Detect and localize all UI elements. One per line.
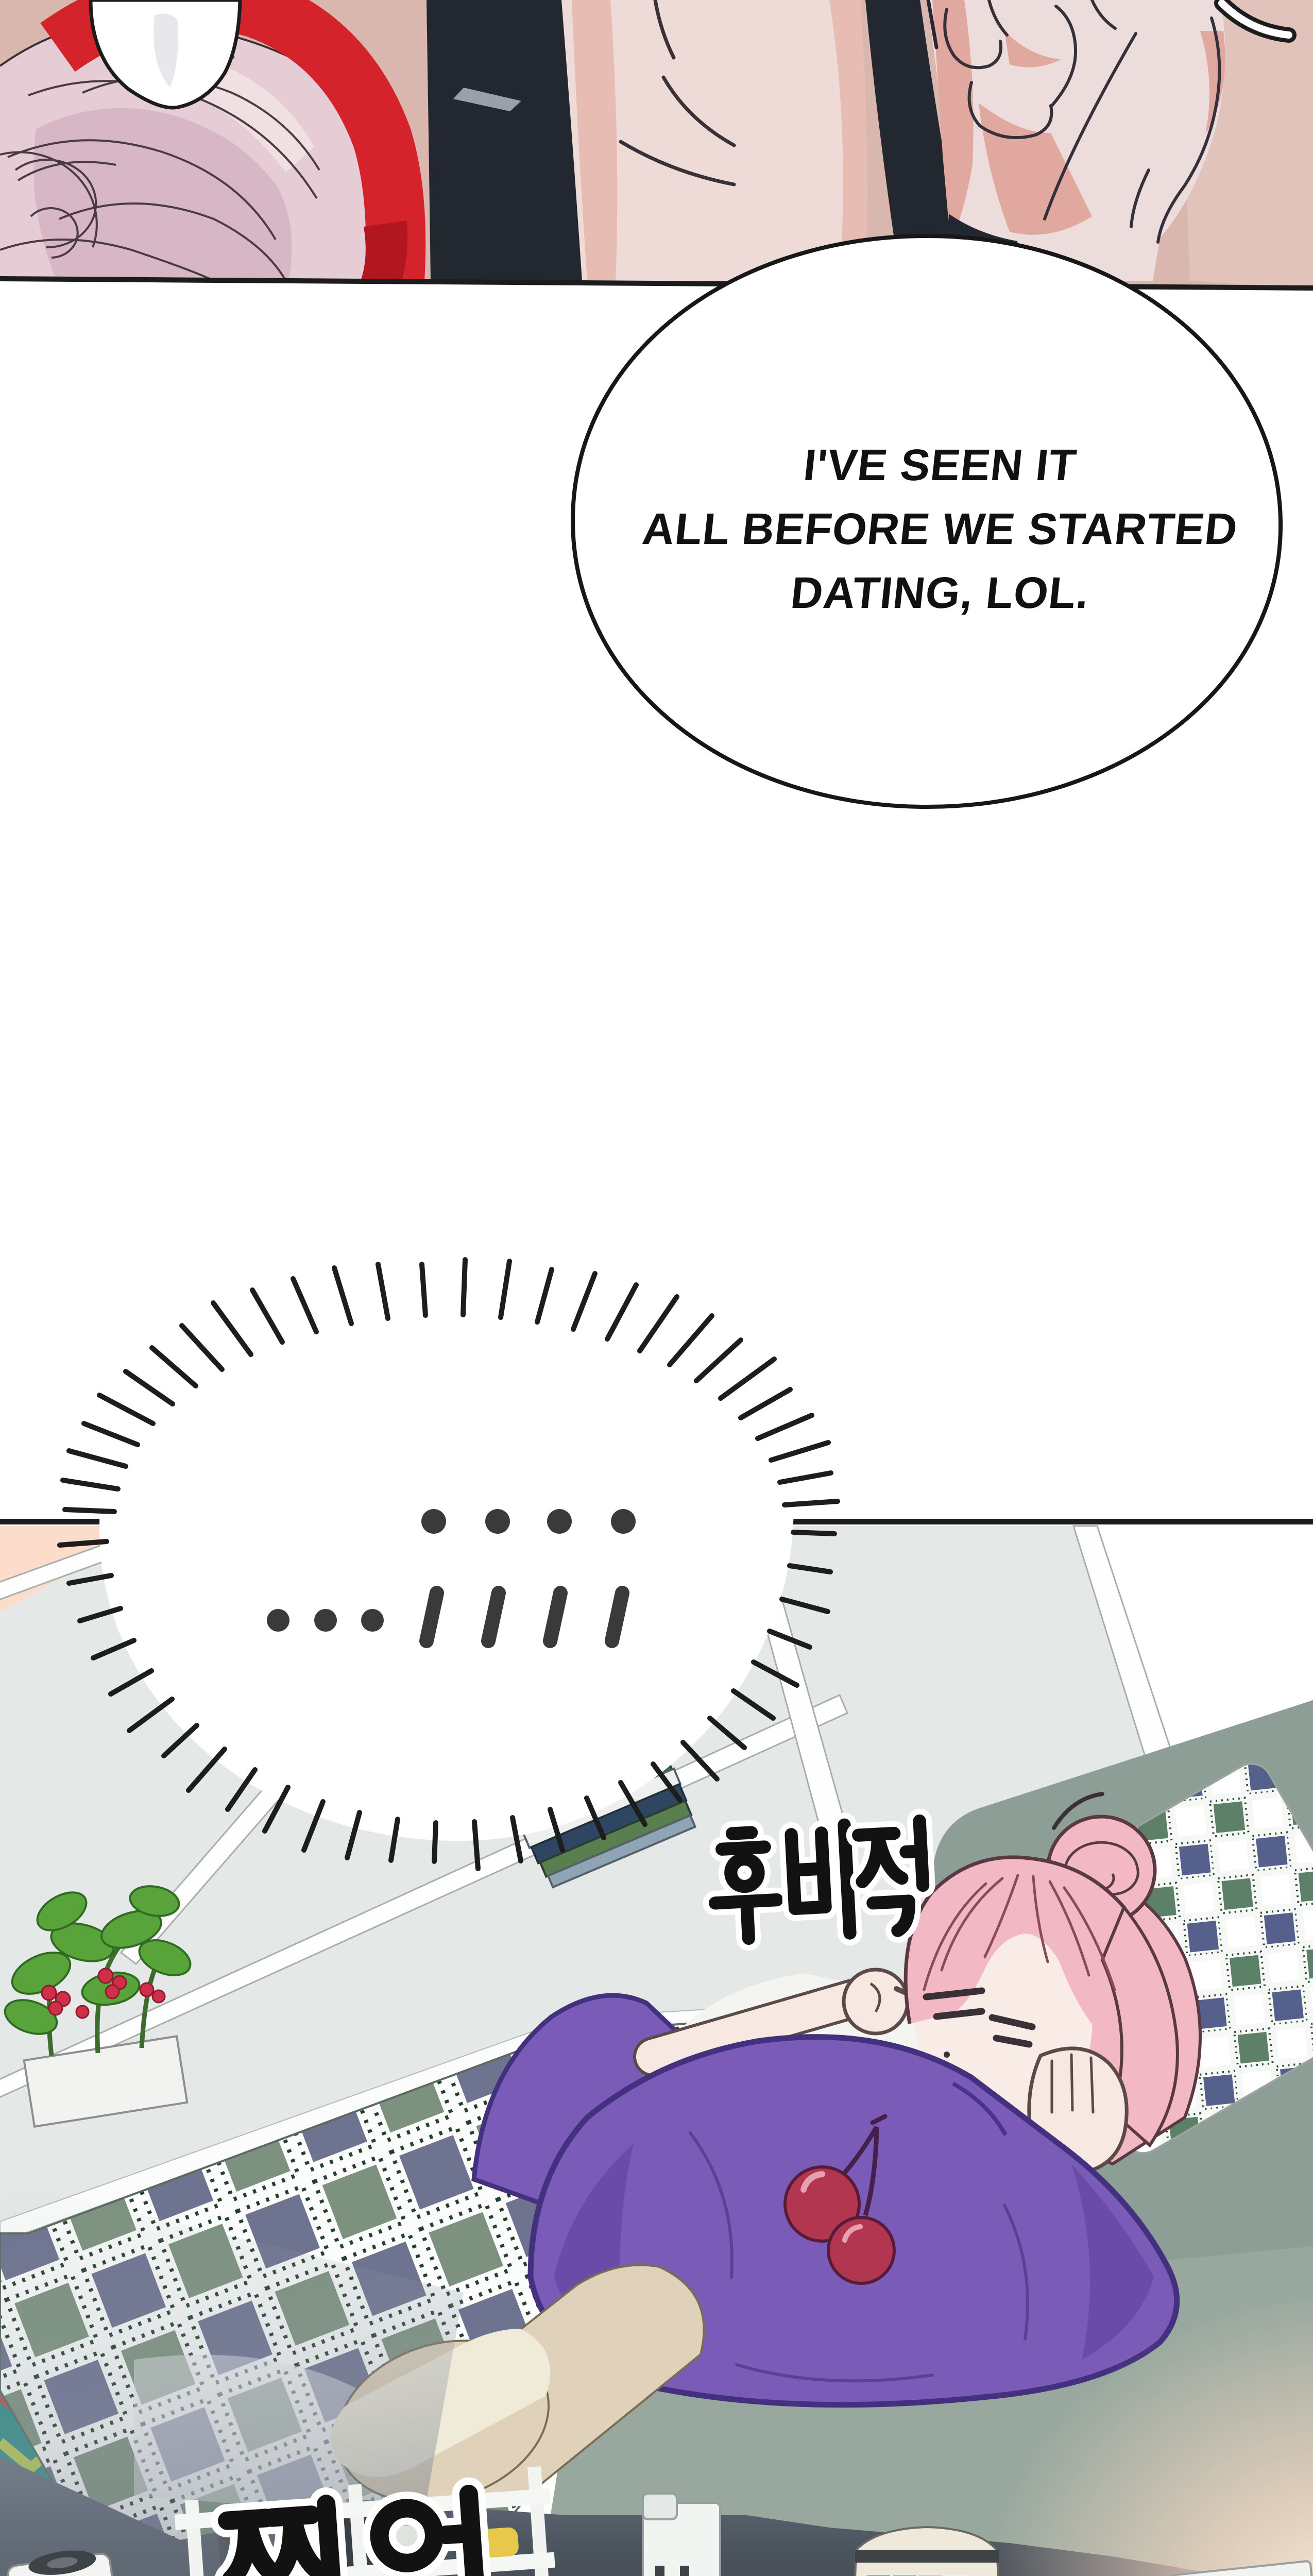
svg-text:I'VE SEEN IT: I'VE SEEN IT xyxy=(801,440,1079,490)
svg-text:ALL BEFORE WE STARTED: ALL BEFORE WE STARTED xyxy=(640,504,1240,554)
svg-text:DATING, LOL.: DATING, LOL. xyxy=(789,568,1092,618)
